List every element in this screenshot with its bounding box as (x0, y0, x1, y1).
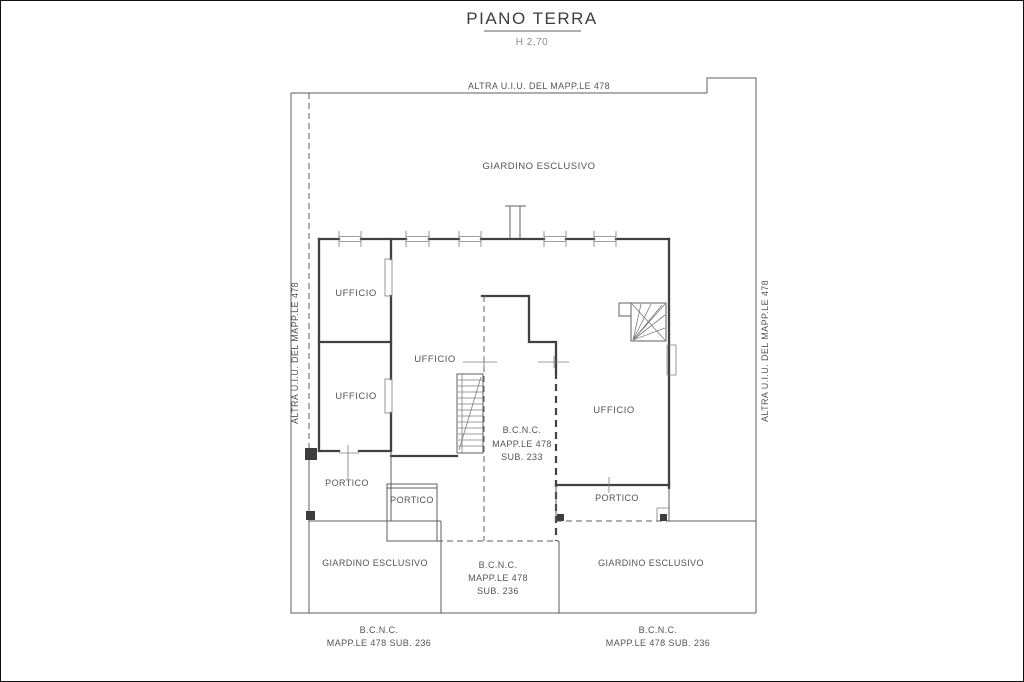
svg-text:MAPP.LE 478: MAPP.LE 478 (468, 573, 528, 583)
room-label-office-center: UFFICIO (414, 354, 456, 365)
room-label-portico-right: PORTICO (595, 493, 639, 503)
svg-text:B.C.N.C.: B.C.N.C. (360, 625, 399, 635)
room-label-office-upper-left: UFFICIO (335, 288, 377, 299)
portico-center-outline (387, 484, 437, 541)
room-label-garden-bottom-left: GIARDINO ESCLUSIVO (322, 558, 428, 568)
staircase-winder (619, 303, 666, 341)
room-label-bcnc-bottom: B.C.N.C. MAPP.LE 478 SUB. 236 (468, 560, 528, 596)
room-label-garden-top: GIARDINO ESCLUSIVO (483, 161, 596, 172)
building-walls (319, 239, 669, 488)
footer-label-left: B.C.N.C. MAPP.LE 478 SUB. 236 (327, 625, 431, 648)
boundary-label-top: ALTRA U.I.U. DEL MAPP.LE 478 (468, 81, 610, 91)
footer-label-right: B.C.N.C. MAPP.LE 478 SUB. 236 (606, 625, 710, 648)
page-title: PIANO TERRA (466, 9, 597, 28)
room-label-garden-bottom-right: GIARDINO ESCLUSIVO (598, 558, 704, 568)
svg-text:B.C.N.C.: B.C.N.C. (479, 560, 518, 570)
door-symbols (339, 259, 609, 493)
room-label-portico-left: PORTICO (325, 478, 369, 488)
chimney (505, 206, 526, 239)
svg-text:MAPP.LE 478 SUB. 236: MAPP.LE 478 SUB. 236 (327, 638, 431, 648)
room-label-office-right: UFFICIO (593, 405, 635, 416)
room-label-office-lower-left: UFFICIO (335, 391, 377, 402)
height-note: H 2,70 (516, 37, 548, 48)
portico-right-outline (556, 485, 669, 521)
svg-text:MAPP.LE 478: MAPP.LE 478 (492, 439, 552, 449)
staircase-main (457, 374, 483, 453)
svg-text:MAPP.LE 478 SUB. 236: MAPP.LE 478 SUB. 236 (606, 638, 710, 648)
boundary-label-left: ALTRA U.I.U. DEL MAPP.LE 478 (290, 282, 300, 424)
floor-plan-page: PIANO TERRA H 2,70 ALTRA U.I.U. DEL MAPP… (0, 0, 1024, 682)
svg-text:B.C.N.C.: B.C.N.C. (639, 625, 678, 635)
svg-text:SUB. 233: SUB. 233 (501, 452, 543, 462)
boundary-label-right: ALTRA U.I.U. DEL MAPP.LE 478 (760, 280, 770, 422)
svg-text:B.C.N.C.: B.C.N.C. (503, 425, 542, 435)
room-label-portico-center: PORTICO (390, 495, 434, 505)
title-block: PIANO TERRA H 2,70 (466, 9, 597, 48)
room-label-bcnc-center: B.C.N.C. MAPP.LE 478 SUB. 233 (492, 425, 552, 462)
floor-plan-drawing: PIANO TERRA H 2,70 ALTRA U.I.U. DEL MAPP… (1, 1, 1023, 681)
svg-text:SUB. 236: SUB. 236 (477, 586, 519, 596)
plot-boundary: ALTRA U.I.U. DEL MAPP.LE 478 ALTRA U.I.U… (290, 78, 770, 613)
